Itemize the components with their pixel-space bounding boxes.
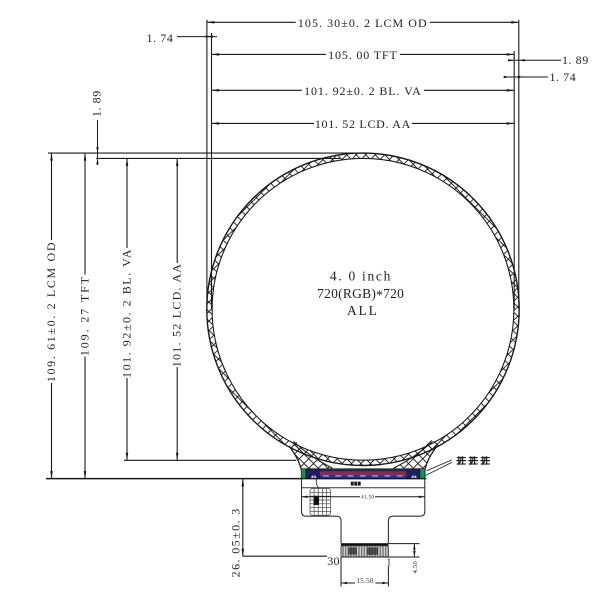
- svg-text:1. 74: 1. 74: [550, 70, 577, 84]
- svg-text:105. 00 TFT: 105. 00 TFT: [328, 48, 397, 62]
- svg-text:101. 52 LCD. AA: 101. 52 LCD. AA: [315, 117, 411, 131]
- svg-text:1. 89: 1. 89: [562, 53, 589, 67]
- svg-text:720(RGB)*720: 720(RGB)*720: [317, 286, 404, 303]
- svg-text:4.50: 4.50: [412, 561, 419, 574]
- svg-text:1: 1: [386, 558, 391, 569]
- svg-text:26. 05±0. 3: 26. 05±0. 3: [229, 507, 243, 577]
- svg-text:109. 61±0. 2 LCM OD: 109. 61±0. 2 LCM OD: [44, 241, 58, 382]
- svg-text:15.50: 15.50: [356, 577, 373, 585]
- svg-text:1. 89: 1. 89: [90, 90, 104, 117]
- svg-text:30: 30: [327, 554, 340, 568]
- svg-text:1. 74: 1. 74: [147, 31, 174, 45]
- svg-text:101. 52 LCD. AA: 101. 52 LCD. AA: [170, 263, 184, 367]
- svg-text:101. 92±0. 2 BL. VA: 101. 92±0. 2 BL. VA: [119, 248, 133, 378]
- svg-text:ALL: ALL: [347, 303, 379, 318]
- svg-text:4. 0 inch: 4. 0 inch: [330, 269, 392, 284]
- svg-text:105. 30±0. 2 LCM OD: 105. 30±0. 2 LCM OD: [298, 16, 428, 30]
- svg-text:109. 27 TFT: 109. 27 TFT: [77, 275, 91, 356]
- svg-text:101. 92±0. 2 BL. VA: 101. 92±0. 2 BL. VA: [304, 84, 422, 98]
- svg-text:41.50: 41.50: [361, 494, 374, 500]
